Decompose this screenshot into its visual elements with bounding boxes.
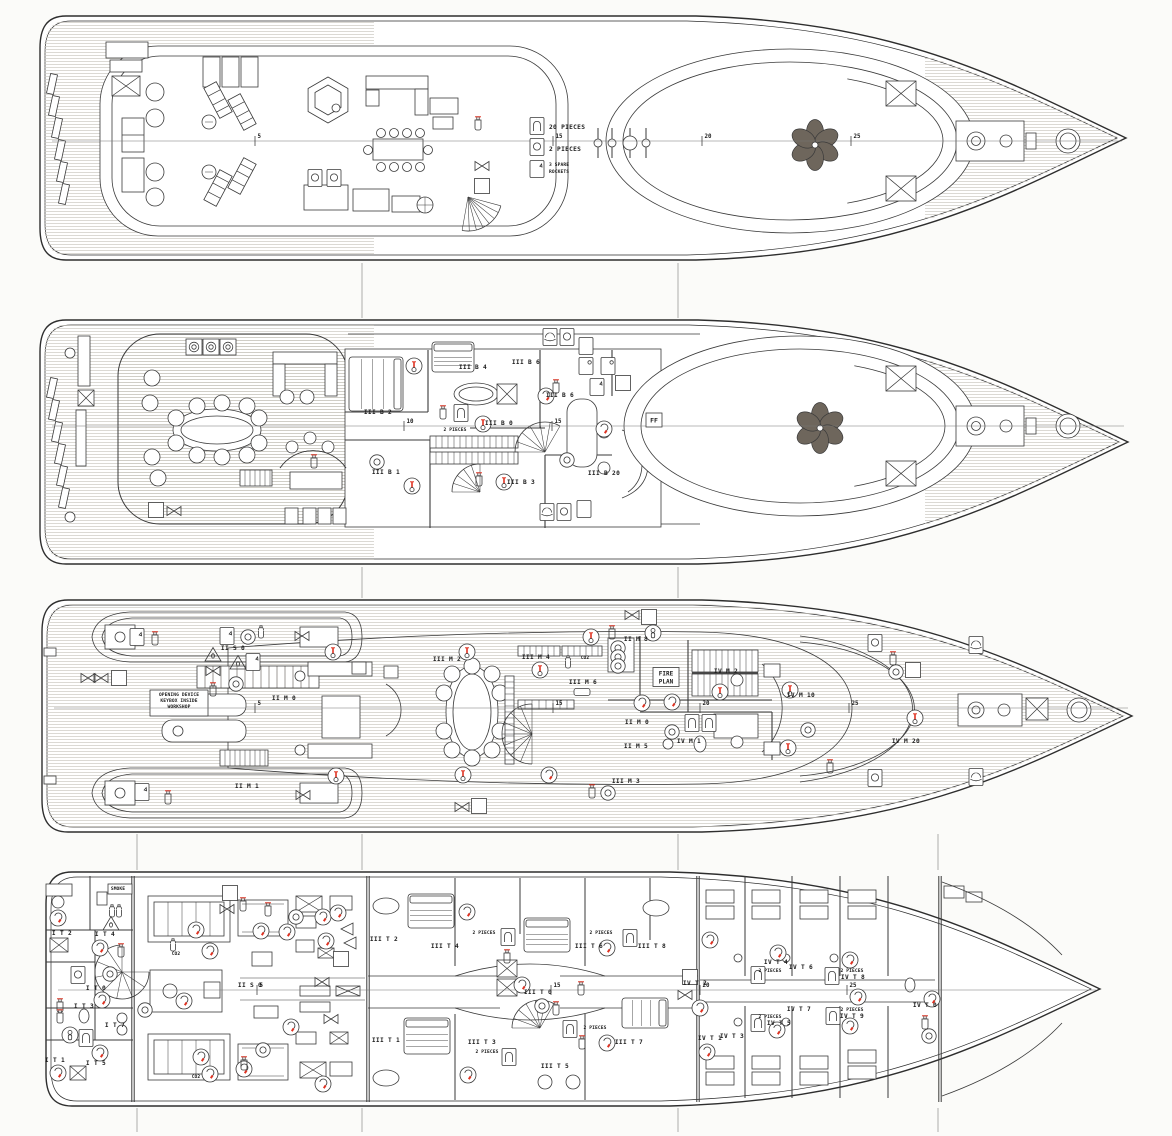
crew-bunk xyxy=(752,1056,780,1069)
smoke-detector-icon xyxy=(330,905,346,921)
fire-hose-reel-icon xyxy=(906,663,921,678)
plan-label: CO2 xyxy=(581,655,590,661)
crew-bunk xyxy=(752,906,780,919)
smoke-detector-icon xyxy=(599,1035,615,1051)
co2-cylinder-icon xyxy=(171,939,176,951)
plan-label: III M 6 xyxy=(569,679,597,686)
crew-bunk xyxy=(800,890,828,903)
alarm-call-point-icon xyxy=(220,339,236,355)
bar-table xyxy=(373,139,423,160)
smoke-detector-icon xyxy=(842,952,858,968)
plan-label: IV T 6 xyxy=(789,964,813,971)
plan-label: III T 6 xyxy=(575,943,603,950)
smoke-detector-icon xyxy=(664,694,680,710)
plan-label: WORKSHOP xyxy=(168,704,191,710)
round-table xyxy=(146,83,164,101)
crew-bunk xyxy=(706,1072,734,1085)
smoke-detector-icon xyxy=(692,1000,708,1016)
heat-detector-icon xyxy=(459,644,475,660)
frame-number: 15 xyxy=(554,983,561,989)
lifebuoy-icon xyxy=(71,967,85,984)
smoke-detector-icon xyxy=(92,940,108,956)
plan-label: IV M 10 xyxy=(787,692,815,699)
alarm-call-point-icon xyxy=(922,1029,936,1043)
smoke-detector-icon xyxy=(315,1076,331,1092)
smoke-detector-icon xyxy=(699,1044,715,1060)
lifebuoy-icon xyxy=(327,170,341,187)
smoke-detector-icon xyxy=(702,932,718,948)
crew-bunk xyxy=(800,906,828,919)
alarm-call-point-icon xyxy=(186,339,202,355)
heat-detector-icon xyxy=(712,684,728,700)
smoke-detector-icon xyxy=(279,924,295,940)
plan-label: III M 3 xyxy=(612,778,640,785)
plan-label: I T 3 xyxy=(74,1003,94,1010)
smoke-detector-icon xyxy=(176,993,192,1009)
fire-hose-reel-icon xyxy=(112,671,127,686)
plan-label: I T 2 xyxy=(52,930,72,937)
plan-label: IV T 0 xyxy=(913,1002,937,1009)
crew-bunk xyxy=(752,1072,780,1085)
lifejackets-locker-icon xyxy=(825,968,839,985)
plan-label: II M 8 xyxy=(624,636,648,643)
plan-label: IV T 5 xyxy=(767,1020,791,1027)
alarm-call-point-icon xyxy=(241,630,255,644)
smoke-detector-icon xyxy=(50,910,66,926)
fire-hose-reel-icon xyxy=(475,179,490,194)
crew-bunk xyxy=(800,1056,828,1069)
plan-label: CO2 xyxy=(192,1074,201,1080)
deck-plan-2: 1015FFIII B 4III B 6III B 6III B 2III B … xyxy=(40,320,1130,564)
distress-rockets-icon xyxy=(246,654,260,671)
smoke-detector-icon xyxy=(596,421,612,437)
lifebuoy-icon xyxy=(557,504,571,521)
plan-label: IV T 4 xyxy=(764,959,788,966)
yacht-safety-plan-page: 515202520 PIECES2 PIECES3 SPAREROCKETS 1… xyxy=(0,0,1172,1136)
heat-detector-icon xyxy=(325,644,341,660)
fire-hose-reel-icon xyxy=(334,952,349,967)
alarm-call-point-icon xyxy=(138,1003,152,1017)
heat-detector-icon xyxy=(583,629,599,645)
alarm-call-point-icon xyxy=(560,453,574,467)
fire-hose-reel-icon xyxy=(149,503,164,518)
smoke-detector-icon xyxy=(283,1019,299,1035)
frame-number: 15 xyxy=(556,134,563,140)
plan-label: ROCKETS xyxy=(549,169,569,175)
lifebuoy-icon xyxy=(308,170,322,187)
smoke-detector-icon xyxy=(541,767,557,783)
plan-label: IV M 20 xyxy=(892,738,920,745)
plan-label: 2 PIECES xyxy=(759,968,782,974)
lifejackets-locker-icon xyxy=(826,1008,840,1025)
lifejackets-locker-icon xyxy=(563,1021,577,1038)
frame-number: 25 xyxy=(852,701,859,707)
smoke-detector-icon xyxy=(253,923,269,939)
round-table xyxy=(146,109,164,127)
smoke-detector-icon xyxy=(460,1067,476,1083)
plan-label: III T 0 xyxy=(524,989,552,996)
plan-label: III B 6 xyxy=(546,392,574,399)
emergency-exit-icon xyxy=(220,628,234,645)
smoke-detector-icon xyxy=(202,1066,218,1082)
plan-label: 2 PIECES xyxy=(590,930,613,936)
fire-hose-reel-icon xyxy=(223,886,238,901)
liferaft-icon xyxy=(969,769,983,786)
frame-number: 15 xyxy=(556,701,563,707)
svg-text:FF: FF xyxy=(650,417,658,425)
plan-label: III M 2 xyxy=(433,656,461,663)
plan-label: IV T 1 xyxy=(698,1035,722,1042)
plan-label: I T 0 xyxy=(86,985,106,992)
plan-label: III T 1 xyxy=(372,1037,400,1044)
lifejackets-locker-icon xyxy=(454,405,468,422)
plan-label: III T 4 xyxy=(431,943,459,950)
plan-label: IV T 3 xyxy=(720,1033,744,1040)
alarm-call-point-icon xyxy=(370,455,384,469)
lifebuoy-icon xyxy=(868,770,882,787)
co2-cylinder-icon xyxy=(110,905,115,917)
frame-number: 5 xyxy=(258,701,262,707)
co2-cylinder-icon xyxy=(117,905,122,917)
plan-label: II S 0 xyxy=(238,982,262,989)
escape-ladder-icon xyxy=(577,501,591,518)
plan-label: CO2 xyxy=(172,951,181,957)
round-table xyxy=(146,163,164,181)
smoke-detector-icon xyxy=(315,909,331,925)
fire-hose-reel-icon xyxy=(642,610,657,625)
smoke-detector-icon xyxy=(318,933,334,949)
frame-number: 20 xyxy=(703,701,710,707)
plan-label: III B 3 xyxy=(507,479,535,486)
frame-number: 20 xyxy=(705,134,712,140)
heat-detector-icon xyxy=(532,662,548,678)
smoke-detector-icon xyxy=(94,992,110,1008)
plan-label: IV T 8 xyxy=(841,974,865,981)
smoke-detector-icon xyxy=(92,1045,108,1061)
plan-label: 2 PIECES xyxy=(473,930,496,936)
plan-label: 3 SPARE xyxy=(549,162,569,168)
plan-label: II S 0 xyxy=(221,645,245,652)
plan-label: III B 1 xyxy=(372,469,400,476)
plan-label: III T 3 xyxy=(468,1039,496,1046)
distress-rockets-icon xyxy=(530,161,544,178)
fire-hose-reel-icon xyxy=(472,799,487,814)
liferaft-icon xyxy=(969,637,983,654)
liferaft-icon xyxy=(543,329,557,346)
lifejackets-locker-icon xyxy=(702,715,716,732)
plan-label: III B 0 xyxy=(485,420,513,427)
plan-label: I T 7 xyxy=(105,1022,125,1029)
plan-label: SMOKE xyxy=(111,886,125,892)
lifejackets-locker-icon xyxy=(685,715,699,732)
heat-detector-icon xyxy=(907,710,923,726)
plan-label: 2 PIECES xyxy=(476,1049,499,1055)
line-throwing-appliance-icon xyxy=(601,358,615,375)
frame-number: 5 xyxy=(258,134,262,140)
plan-label: I T 1 xyxy=(45,1057,65,1064)
plan-label: II M 1 xyxy=(235,783,259,790)
plan-label: IV M 1 xyxy=(677,738,701,745)
plan-label: III B 2 xyxy=(364,409,392,416)
fire-hose-reel-icon xyxy=(616,376,631,391)
smoke-detector-icon xyxy=(188,922,204,938)
crew-bunk xyxy=(800,1072,828,1085)
crew-bunk xyxy=(848,890,876,903)
alarm-call-point-icon xyxy=(229,677,243,691)
alarm-call-point-icon xyxy=(103,967,117,981)
deck-plan-4: 5152025SMOKECO2CO2II S 0I T 2I T 4I T 0I… xyxy=(45,872,1100,1106)
plan-label: 2 PIECES xyxy=(444,427,467,433)
deck-plan-3: 5152025FIREPLANOPENING DEVICEKEYBOX INSI… xyxy=(42,600,1132,832)
frame-number: 10 xyxy=(407,419,414,425)
plan-label: OPENING DEVICE xyxy=(159,692,199,698)
svg-text:FIRE: FIRE xyxy=(659,670,674,677)
svg-text:PLAN: PLAN xyxy=(659,678,674,685)
plan-label: III T 2 xyxy=(370,936,398,943)
lifebuoy-icon xyxy=(530,139,544,156)
emergency-exit-icon xyxy=(135,784,149,801)
smoke-detector-icon xyxy=(202,943,218,959)
frame-number: 25 xyxy=(850,983,857,989)
lifejackets-locker-icon xyxy=(623,930,637,947)
plan-label: 2 PIECES xyxy=(584,1025,607,1031)
alarm-call-point-icon xyxy=(889,665,903,679)
deck-plan-1: 515202520 PIECES2 PIECES3 SPAREROCKETS xyxy=(40,16,1130,260)
smoke-detector-icon xyxy=(459,904,475,920)
plan-label: III B 4 xyxy=(459,364,487,371)
round-table xyxy=(146,188,164,206)
frame-number: 25 xyxy=(854,134,861,140)
plan-label: IV T 2 xyxy=(683,980,707,987)
heat-detector-icon xyxy=(455,767,471,783)
co2-cylinder-icon xyxy=(259,626,264,638)
plan-label: KEYBOX INSIDE xyxy=(160,698,197,704)
plan-label: III T 8 xyxy=(638,943,666,950)
alarm-call-point-icon xyxy=(535,999,549,1013)
plan-label: III T 7 xyxy=(615,1039,643,1046)
breathing-apparatus-icon xyxy=(62,1027,78,1043)
heat-detector-icon xyxy=(328,768,344,784)
alarm-call-point-icon xyxy=(256,1043,270,1057)
line-throwing-appliance-icon xyxy=(579,358,593,375)
lifejackets-locker-icon xyxy=(502,1049,516,1066)
plan-label: 2 PIECES xyxy=(549,146,581,153)
heat-detector-icon xyxy=(780,740,796,756)
plan-label: IV T 9 xyxy=(840,1013,864,1020)
alarm-call-point-icon xyxy=(611,659,625,673)
alarm-call-point-icon xyxy=(801,723,815,737)
crew-bunk xyxy=(752,890,780,903)
co2-cylinder-icon xyxy=(566,656,571,668)
heat-detector-icon xyxy=(404,478,420,494)
deck-plans-drawing: 515202520 PIECES2 PIECES3 SPAREROCKETS 1… xyxy=(0,0,1172,1136)
fireman-outfit-icon: FF xyxy=(646,413,662,427)
plan-label: 20 PIECES xyxy=(549,124,585,131)
crew-bunk xyxy=(706,906,734,919)
plan-label: IV T 7 xyxy=(787,1006,811,1013)
plan-label: II M 0 xyxy=(625,719,649,726)
lifebuoy-icon xyxy=(560,329,574,346)
crew-bunk xyxy=(848,1050,876,1063)
plan-label: I T 5 xyxy=(86,1060,106,1067)
liferaft-icon xyxy=(540,504,554,521)
plan-label: III B 20 xyxy=(588,470,620,477)
crew-bunk xyxy=(848,1066,876,1079)
smoke-detector-icon xyxy=(236,1061,252,1077)
alarm-call-point-icon xyxy=(203,339,219,355)
lifejackets-locker-icon xyxy=(530,118,544,135)
plan-label: II M 5 xyxy=(624,743,648,750)
escape-ladder-icon xyxy=(579,338,593,355)
lifejackets-locker-icon xyxy=(501,929,515,946)
alarm-call-point-icon xyxy=(601,786,615,800)
tiled-floor xyxy=(714,714,758,738)
crew-bunk xyxy=(848,906,876,919)
alarm-call-point-icon xyxy=(289,910,303,924)
fire-plan-box-icon: FIREPLAN xyxy=(653,668,679,687)
frame-number: 15 xyxy=(555,419,562,425)
smoke-detector-icon xyxy=(193,1049,209,1065)
plan-label: III T 5 xyxy=(541,1063,569,1070)
smoke-detector-icon xyxy=(50,1065,66,1081)
first-aid-kit-icon xyxy=(574,688,590,695)
bench-seat xyxy=(304,185,348,210)
crew-bunk xyxy=(706,890,734,903)
heat-detector-icon xyxy=(406,358,422,374)
plan-label: II M 0 xyxy=(272,695,296,702)
distress-rockets-icon xyxy=(590,379,604,396)
plan-label: I T 4 xyxy=(95,931,115,938)
plan-label: III M 4 xyxy=(522,654,550,661)
lifebuoy-icon xyxy=(868,635,882,652)
smoke-detector-icon xyxy=(634,695,650,711)
lifejackets-locker-icon xyxy=(79,1030,93,1047)
plan-label: III B 6 xyxy=(512,359,540,366)
smoke-detector-icon xyxy=(850,989,866,1005)
smoke-detector-icon xyxy=(842,1018,858,1034)
emergency-exit-icon xyxy=(130,629,144,646)
plan-label: IV M 2 xyxy=(714,668,738,675)
